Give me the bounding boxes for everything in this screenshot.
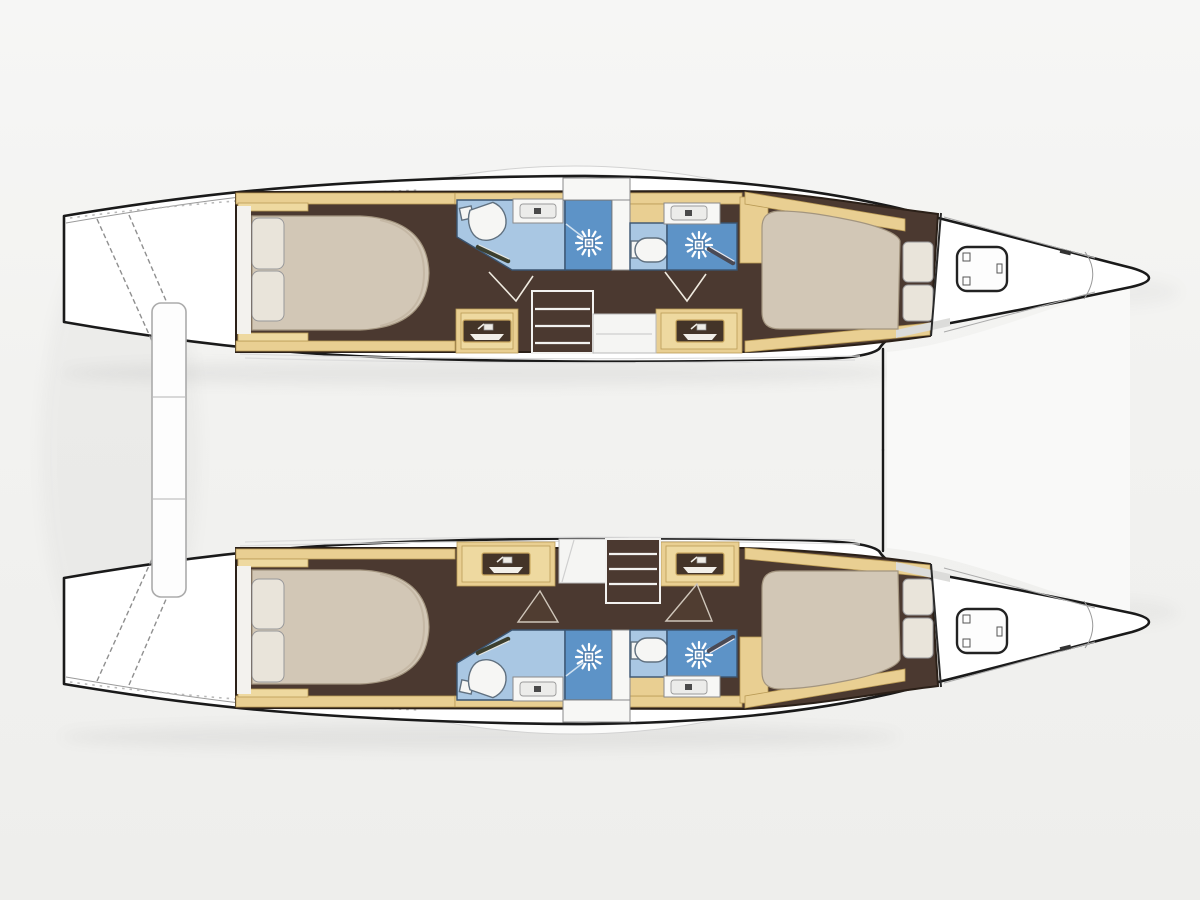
catamaran-floor-plan [0,0,1200,900]
aft-crossbeam [152,303,186,597]
companionway-steps [606,539,660,603]
companionway-landing [559,539,607,583]
floor-plan-canvas [0,0,1200,900]
